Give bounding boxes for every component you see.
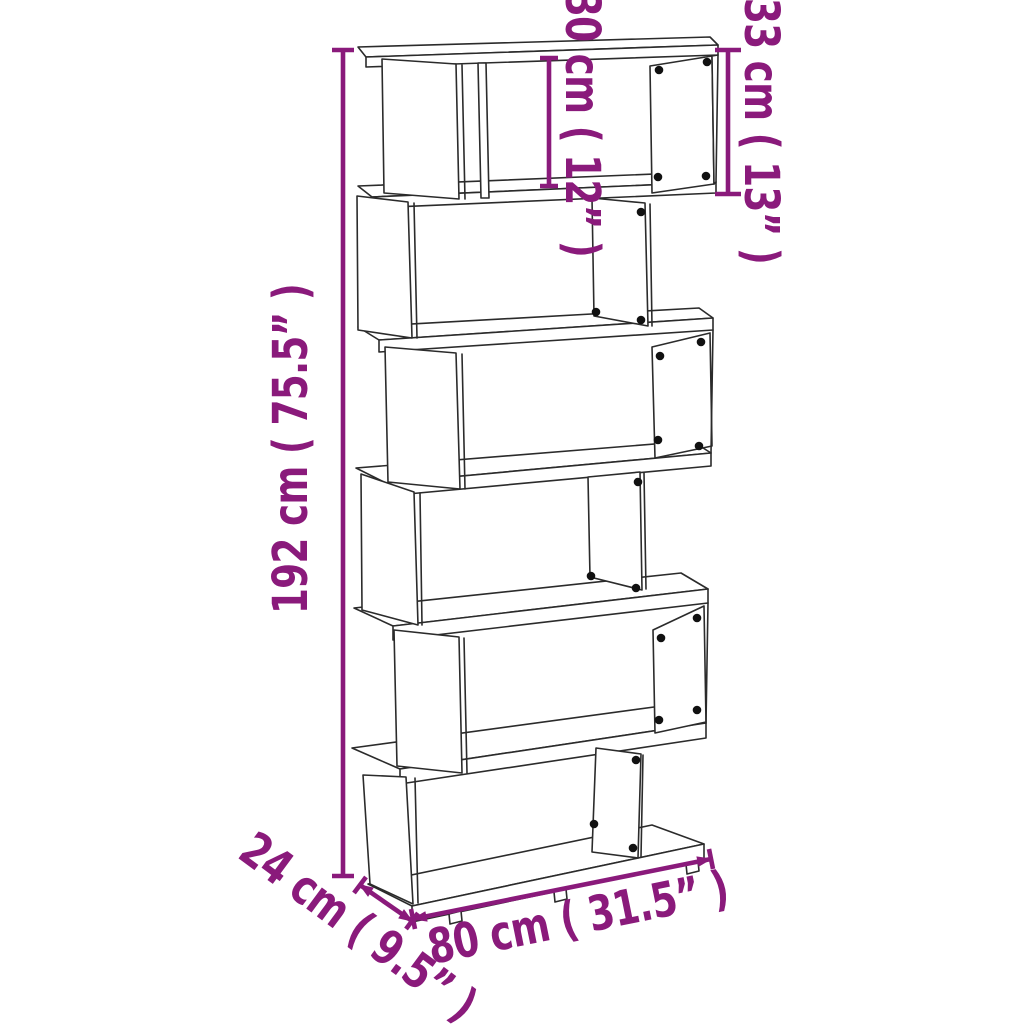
tier6-left-panel	[363, 775, 413, 904]
product-dimension-diagram: 192 cm ( 75.5” ) 30 cm ( 12” ) 33 cm ( 1…	[0, 0, 1024, 1024]
tier-height-dimension-label: 33 cm ( 13” )	[737, 0, 785, 264]
tier6-divider	[592, 748, 641, 858]
bookshelf-line-drawing	[0, 0, 1024, 1024]
tier5-left-panel	[394, 630, 462, 773]
inner-height-dimension-label: 30 cm ( 12” )	[558, 0, 606, 257]
tier2-left-panel	[357, 196, 412, 338]
tier4-divider	[588, 472, 642, 590]
tier3-left-panel	[385, 347, 460, 489]
height-dimension-label: 192 cm ( 75.5” )	[267, 284, 315, 614]
tier1-divider	[478, 63, 489, 198]
tier1-left-panel	[382, 59, 459, 199]
height-dimension-line	[332, 50, 354, 876]
tier4-left-panel	[361, 474, 418, 625]
